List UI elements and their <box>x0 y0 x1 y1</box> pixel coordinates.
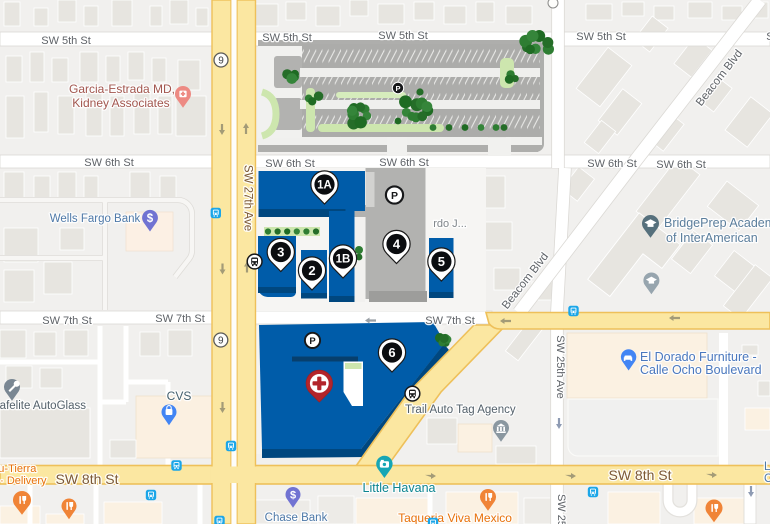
svg-text:9: 9 <box>218 56 224 67</box>
svg-text:1A: 1A <box>317 180 332 192</box>
svg-text:SW 8th St: SW 8th St <box>608 467 671 483</box>
svg-text:SW 6th St: SW 6th St <box>379 157 429 169</box>
svg-text:$: $ <box>290 490 296 502</box>
svg-text:Tu-Tierra: Tu-Tierra <box>0 463 37 475</box>
svg-text:SW 7th St: SW 7th St <box>155 313 205 325</box>
svg-text:4: 4 <box>393 237 401 252</box>
svg-text:P: P <box>391 190 398 202</box>
svg-text:SW 6th St: SW 6th St <box>656 159 706 171</box>
svg-text:Kidney Associates: Kidney Associates <box>72 96 169 110</box>
svg-text:$: $ <box>147 213 154 225</box>
svg-text:La: La <box>764 461 770 473</box>
svg-text:SW 7th St: SW 7th St <box>42 315 92 327</box>
svg-text:2: 2 <box>308 263 315 278</box>
svg-text:3: 3 <box>277 245 284 260</box>
svg-text:SW 5th St: SW 5th St <box>766 31 770 43</box>
svg-text:Safelite AutoGlass: Safelite AutoGlass <box>0 400 86 412</box>
svg-text:6: 6 <box>388 345 395 360</box>
svg-text:CVS: CVS <box>167 389 192 403</box>
svg-text:of InterAmerican: of InterAmerican <box>666 231 758 245</box>
svg-text:SW 5th St: SW 5th St <box>262 32 312 44</box>
svg-text:P: P <box>395 84 400 93</box>
svg-text:rdo J...: rdo J... <box>433 218 467 230</box>
svg-text:SW 6th St: SW 6th St <box>587 158 637 170</box>
svg-text:SW 7th St: SW 7th St <box>425 315 475 327</box>
svg-text:SW 6th St: SW 6th St <box>265 158 315 170</box>
svg-text:t · Delivery: t · Delivery <box>0 475 47 487</box>
svg-text:BridgePrep Academy: BridgePrep Academy <box>664 216 770 230</box>
svg-text:SW 27th Ave: SW 27th Ave <box>242 165 254 231</box>
svg-text:Taqueria Viva Mexico: Taqueria Viva Mexico <box>398 511 512 524</box>
svg-text:SW 5th St: SW 5th St <box>378 30 428 42</box>
svg-text:P: P <box>309 336 316 347</box>
svg-text:Calle Ocho Boulevard: Calle Ocho Boulevard <box>640 363 762 377</box>
svg-text:1B: 1B <box>336 254 351 266</box>
svg-text:SW 6th St: SW 6th St <box>84 157 134 169</box>
svg-text:Chase Bank: Chase Bank <box>265 512 328 524</box>
svg-text:El Dorado Furniture -: El Dorado Furniture - <box>640 350 757 364</box>
svg-text:Wells Fargo Bank: Wells Fargo Bank <box>50 213 141 225</box>
svg-text:Ca: Ca <box>764 473 770 485</box>
svg-text:SW 8th St: SW 8th St <box>55 471 118 487</box>
svg-text:9: 9 <box>218 336 224 347</box>
svg-text:Little Havana: Little Havana <box>363 481 436 495</box>
svg-text:Trail Auto Tag Agency: Trail Auto Tag Agency <box>405 404 516 416</box>
svg-text:5: 5 <box>438 254 445 269</box>
svg-text:SW 5th St: SW 5th St <box>41 35 91 47</box>
svg-text:SW 25th Ave: SW 25th Ave <box>554 335 566 398</box>
svg-text:SW 5th St: SW 5th St <box>576 31 626 43</box>
svg-text:Garcia-Estrada MD,: Garcia-Estrada MD, <box>69 82 175 96</box>
svg-text:SW 25t: SW 25t <box>555 494 567 524</box>
